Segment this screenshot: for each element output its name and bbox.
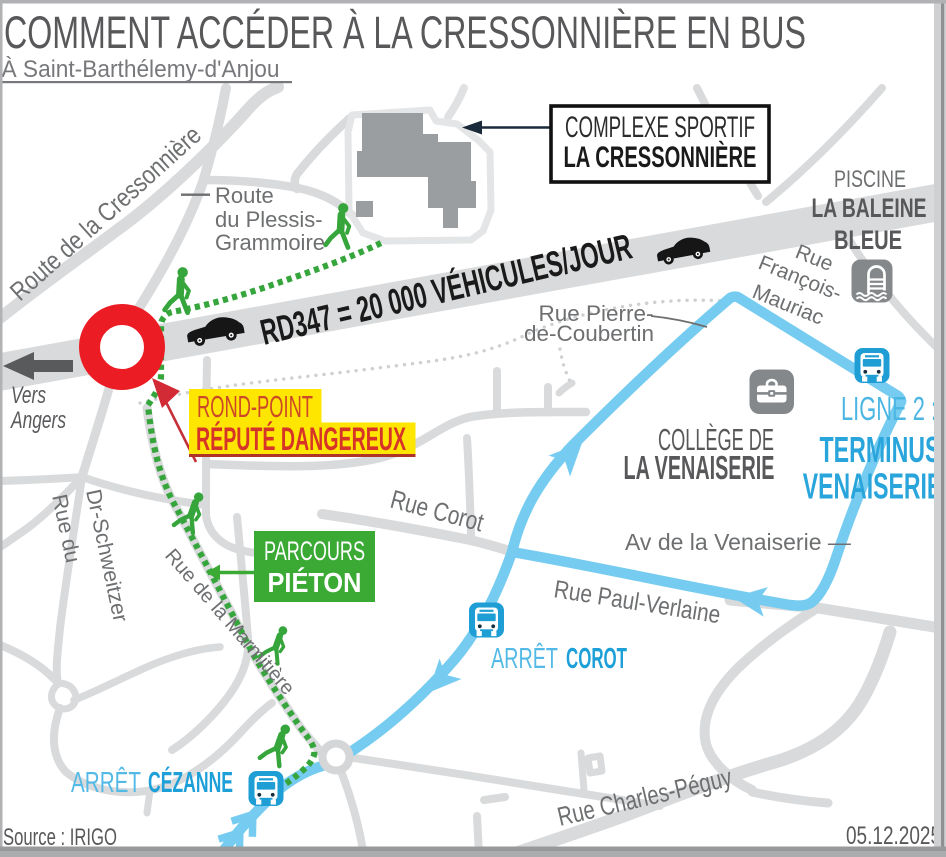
svg-text:ROND-POINT: ROND-POINT [197, 389, 313, 424]
svg-text:LA VENAISERIE: LA VENAISERIE [624, 449, 775, 486]
svg-text:PIÉTON: PIÉTON [268, 567, 362, 598]
svg-text:Vers: Vers [11, 382, 46, 409]
svg-text:LA CRESSONNIÈRE: LA CRESSONNIÈRE [564, 140, 757, 174]
svg-text:ARRÊT: ARRÊT [71, 766, 141, 799]
svg-text:TERMINUS: TERMINUS [820, 429, 941, 470]
svg-text:VENAISERIE: VENAISERIE [803, 466, 943, 507]
svg-text:COMMENT ACCÉDER À LA CRESSONNI: COMMENT ACCÉDER À LA CRESSONNIÈRE EN BUS [4, 7, 806, 58]
svg-text:COROT: COROT [566, 643, 627, 675]
svg-text:Route: Route [215, 183, 274, 208]
svg-text:05.12.2025: 05.12.2025 [846, 822, 941, 850]
svg-text:ARRÊT: ARRÊT [491, 643, 558, 675]
svg-text:À Saint-Barthélemy-d'Anjou: À Saint-Barthélemy-d'Anjou [2, 56, 280, 83]
svg-text:LIGNE 2 :: LIGNE 2 : [841, 390, 937, 427]
svg-text:du Plessis-: du Plessis- [215, 207, 323, 232]
svg-text:Grammoire: Grammoire [215, 230, 325, 255]
svg-text:de-Coubertin: de-Coubertin [524, 321, 654, 346]
svg-text:Av de la Venaiserie —: Av de la Venaiserie — [625, 529, 851, 555]
svg-text:CÉZANNE: CÉZANNE [148, 765, 233, 799]
svg-text:PISCINE: PISCINE [834, 166, 906, 193]
svg-text:PARCOURS: PARCOURS [264, 536, 365, 566]
svg-text:RÉPUTÉ DANGEREUX: RÉPUTÉ DANGEREUX [196, 421, 406, 457]
svg-text:LA BALEINE: LA BALEINE [812, 193, 927, 223]
svg-text:Angers: Angers [10, 407, 66, 434]
svg-text:COMPLEXE SPORTIF: COMPLEXE SPORTIF [565, 111, 755, 144]
svg-text:BLEUE: BLEUE [834, 225, 902, 255]
